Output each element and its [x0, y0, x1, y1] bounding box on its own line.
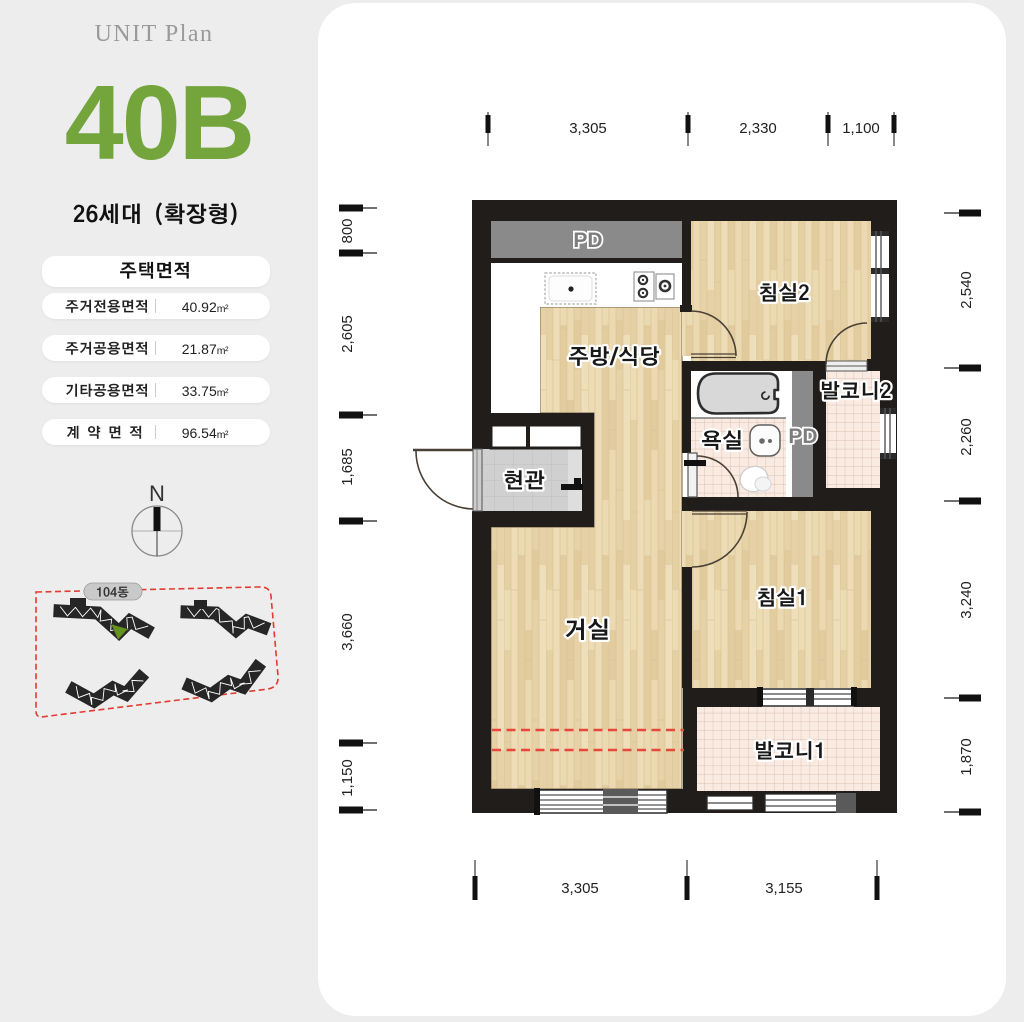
svg-text:3,155: 3,155	[765, 880, 803, 897]
svg-text:1,685: 1,685	[339, 448, 356, 486]
svg-text:2,540: 2,540	[958, 271, 975, 309]
svg-text:1,150: 1,150	[339, 759, 356, 797]
svg-text:3,660: 3,660	[339, 613, 356, 651]
svg-text:2,605: 2,605	[339, 315, 356, 353]
svg-text:2,260: 2,260	[958, 418, 975, 456]
svg-text:800: 800	[339, 218, 356, 243]
svg-text:3,305: 3,305	[561, 880, 599, 897]
svg-text:1,870: 1,870	[958, 738, 975, 776]
svg-text:3,240: 3,240	[958, 581, 975, 619]
svg-text:2,330: 2,330	[739, 120, 777, 137]
svg-text:3,305: 3,305	[569, 120, 607, 137]
svg-text:PD: PD	[573, 229, 602, 252]
svg-text:N: N	[149, 481, 165, 506]
svg-text:1,100: 1,100	[842, 120, 880, 137]
svg-text:PD: PD	[788, 425, 817, 448]
